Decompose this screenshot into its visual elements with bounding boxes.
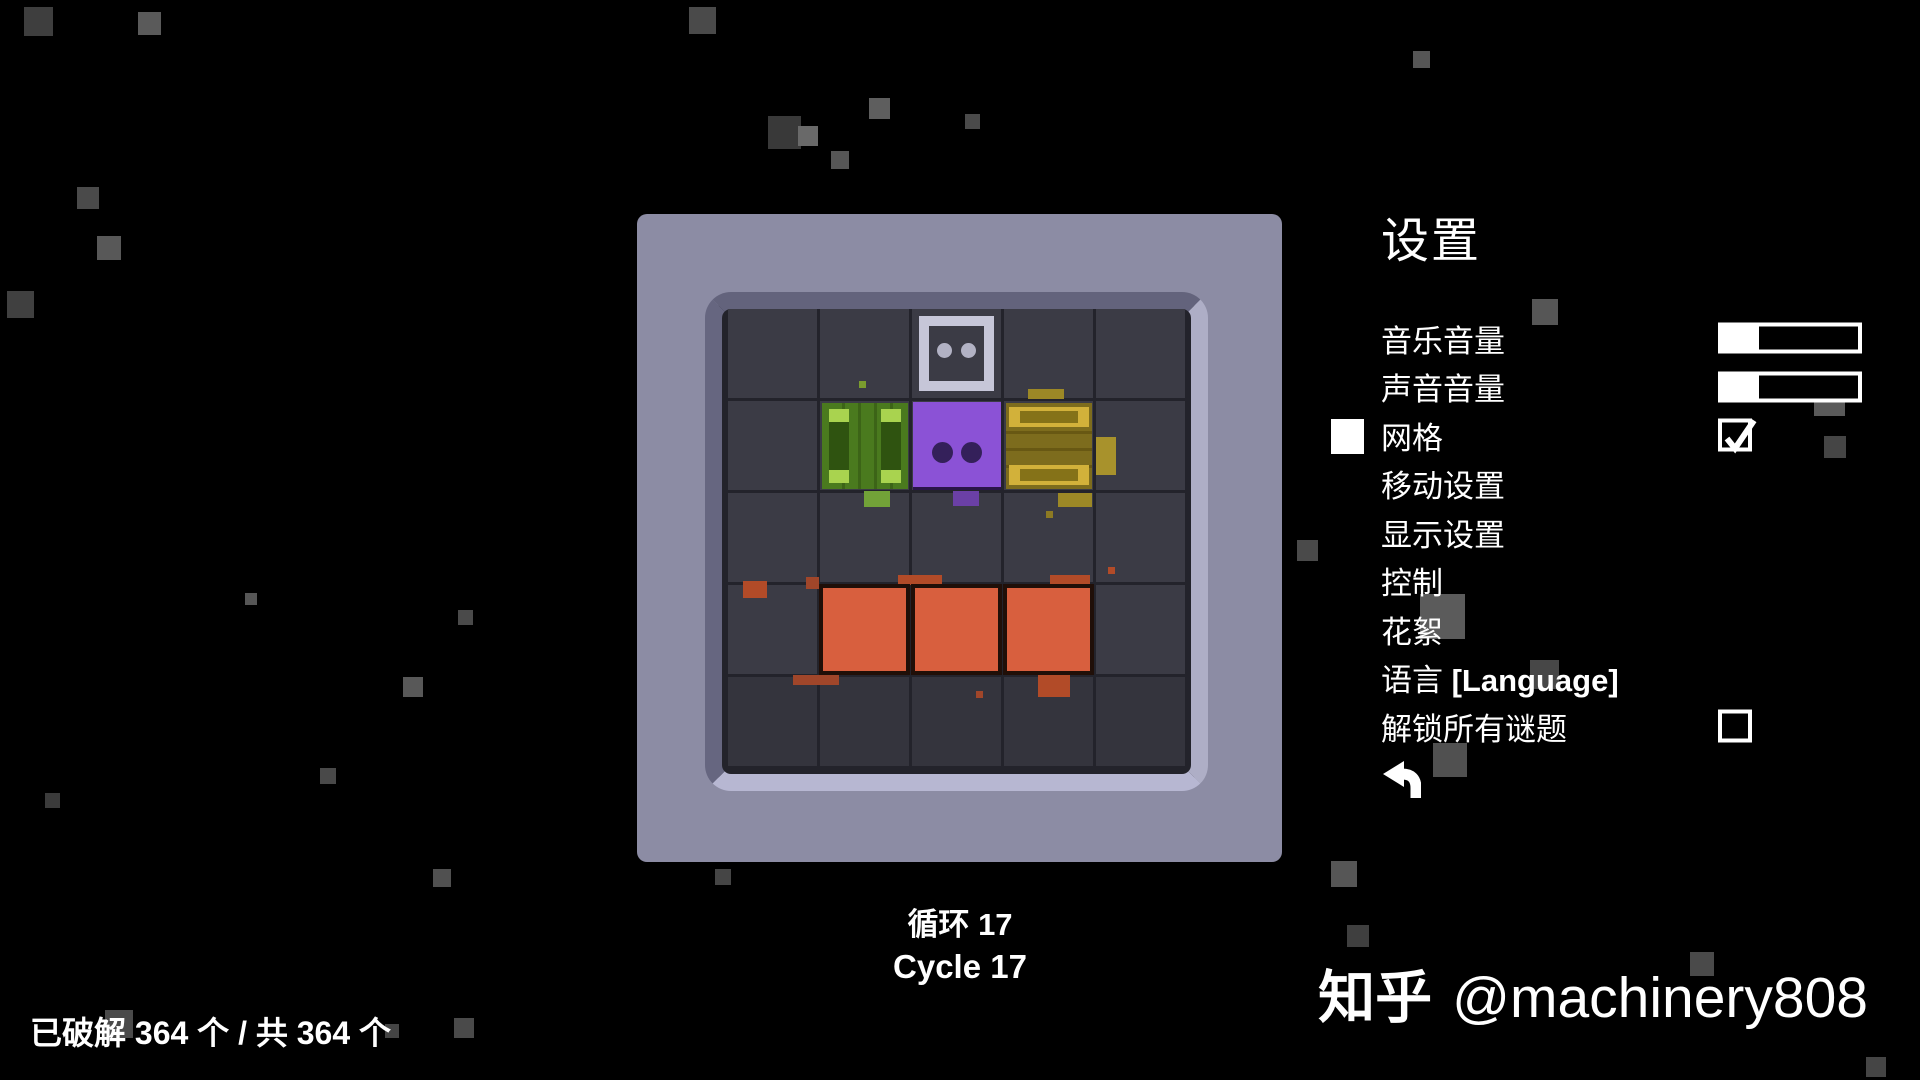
debris-chip <box>1028 389 1064 399</box>
grid-cell <box>912 677 1001 766</box>
slider-fill <box>1722 375 1759 398</box>
background-particle <box>24 7 53 36</box>
background-particle <box>454 1018 474 1038</box>
grid-cell <box>1096 677 1185 766</box>
background-particle <box>458 610 473 625</box>
settings-item-label: 花絮 <box>1381 607 1443 652</box>
grid-cell <box>1004 309 1093 398</box>
settings-item-display-settings[interactable]: 显示设置 <box>1381 508 1862 557</box>
target-eye-right <box>961 343 976 358</box>
background-particle <box>403 677 423 697</box>
player-eye-right <box>961 442 982 463</box>
settings-item-extras[interactable]: 花絮 <box>1381 605 1862 654</box>
orange-block-1 <box>819 584 910 675</box>
green-crate-rail-cap <box>881 470 901 483</box>
settings-item-label: 声音音量 <box>1381 364 1505 409</box>
background-particle <box>1297 540 1318 561</box>
settings-item-label: 移动设置 <box>1381 461 1505 506</box>
slider-fill <box>1722 327 1759 350</box>
background-particle <box>320 768 336 784</box>
debris-chip <box>1038 673 1070 697</box>
grid-cell <box>728 585 817 674</box>
background-particle <box>7 291 34 318</box>
watermark-brand: 知乎 <box>1318 966 1432 1030</box>
yellow-crate <box>1006 403 1092 489</box>
settings-title: 设置 <box>1381 218 1862 266</box>
debris-chip <box>976 691 983 698</box>
settings-item-label: 音乐音量 <box>1381 316 1505 361</box>
target-eye-left <box>937 343 952 358</box>
background-particle <box>77 187 99 209</box>
debris-chip <box>1058 493 1092 507</box>
yellow-crate-slat <box>1009 407 1089 427</box>
puzzle-well <box>705 292 1208 791</box>
debris-chip <box>806 577 819 589</box>
debris-chip <box>1096 437 1116 475</box>
solved-counter: 已破解 364 个 / 共 364 个 <box>30 1008 391 1054</box>
watermark-handle: @machinery808 <box>1452 966 1868 1030</box>
debris-chip <box>859 381 866 388</box>
green-crate <box>822 403 908 489</box>
yellow-crate-slat <box>1009 465 1089 485</box>
background-particle <box>715 869 731 885</box>
settings-item-back[interactable] <box>1381 751 1862 800</box>
green-crate-plank-line <box>874 403 877 489</box>
sound-volume-slider[interactable] <box>1718 371 1862 402</box>
grid-cell <box>728 309 817 398</box>
background-particle <box>97 236 121 260</box>
yellow-crate-slat-panel <box>1020 469 1078 481</box>
green-crate-rail-cap <box>881 409 901 422</box>
game-screen: 设置 音乐音量声音音量网格移动设置显示设置控制花絮语言 [Language]解锁… <box>0 0 1920 1080</box>
watermark: 知乎@machinery808 <box>1318 952 1868 1034</box>
grid-cell <box>728 677 817 766</box>
target-outline-box <box>919 316 994 391</box>
player-box <box>913 402 1001 490</box>
settings-item-label: 显示设置 <box>1381 510 1505 555</box>
background-particle <box>45 793 60 808</box>
background-particle <box>798 126 818 146</box>
settings-item-controls[interactable]: 控制 <box>1381 557 1862 606</box>
background-particle <box>138 12 161 35</box>
green-crate-rail-cap <box>829 470 849 483</box>
debris-chip <box>793 675 839 685</box>
grid-cell <box>820 677 909 766</box>
background-particle <box>869 98 890 119</box>
background-particle <box>768 116 801 149</box>
debris-chip <box>953 491 979 506</box>
settings-item-label: 网格 <box>1381 413 1443 458</box>
orange-block-3 <box>1003 584 1094 675</box>
settings-item-label: 解锁所有谜题 <box>1381 704 1567 749</box>
selection-cursor <box>1331 419 1364 454</box>
grid-checkbox[interactable] <box>1718 419 1752 452</box>
unlock-all-puzzles-checkbox[interactable] <box>1718 710 1752 743</box>
debris-chip <box>1046 511 1053 518</box>
settings-menu: 设置 音乐音量声音音量网格移动设置显示设置控制花絮语言 [Language]解锁… <box>1381 218 1862 266</box>
background-particle <box>1331 861 1357 887</box>
yellow-crate-plank-line <box>1006 448 1092 451</box>
debris-chip <box>864 491 890 507</box>
settings-item-sound-volume[interactable]: 声音音量 <box>1381 363 1862 412</box>
settings-item-grid[interactable]: 网格 <box>1381 411 1862 460</box>
orange-block-2 <box>911 584 1002 675</box>
debris-chip <box>1108 567 1115 574</box>
grid-cell <box>728 401 817 490</box>
green-crate-plank-line <box>858 403 861 489</box>
music-volume-slider[interactable] <box>1718 323 1862 354</box>
grid-cell <box>1096 309 1185 398</box>
background-particle <box>1413 51 1430 68</box>
checkmark-icon <box>1720 415 1758 457</box>
background-particle <box>689 7 716 34</box>
background-particle <box>1866 1057 1886 1077</box>
settings-item-label: 控制 <box>1381 558 1443 603</box>
grid-cell <box>912 493 1001 582</box>
player-eye-left <box>932 442 953 463</box>
back-arrow-icon[interactable] <box>1381 757 1421 799</box>
green-crate-rail-cap <box>829 409 849 422</box>
background-particle <box>433 869 451 887</box>
settings-item-label: 语言 [Language] <box>1381 655 1619 700</box>
settings-rows: 音乐音量声音音量网格移动设置显示设置控制花絮语言 [Language]解锁所有谜… <box>1381 314 1862 799</box>
background-particle <box>245 593 257 605</box>
yellow-crate-slat-panel <box>1020 411 1078 423</box>
settings-item-movement-settings[interactable]: 移动设置 <box>1381 460 1862 509</box>
background-particle <box>965 114 980 129</box>
puzzle-frame <box>637 214 1282 862</box>
yellow-crate-plank-line <box>1006 431 1092 434</box>
settings-item-unlock-all-puzzles[interactable]: 解锁所有谜题 <box>1381 702 1862 751</box>
background-particle <box>831 151 849 169</box>
settings-item-language[interactable]: 语言 [Language] <box>1381 654 1862 703</box>
cycle-label-zh: 循环 17 <box>0 903 1920 947</box>
settings-item-music-volume[interactable]: 音乐音量 <box>1381 314 1862 363</box>
grid-cell <box>728 493 817 582</box>
puzzle-grid <box>728 309 1188 769</box>
debris-chip <box>743 581 767 598</box>
grid-cell <box>1096 585 1185 674</box>
